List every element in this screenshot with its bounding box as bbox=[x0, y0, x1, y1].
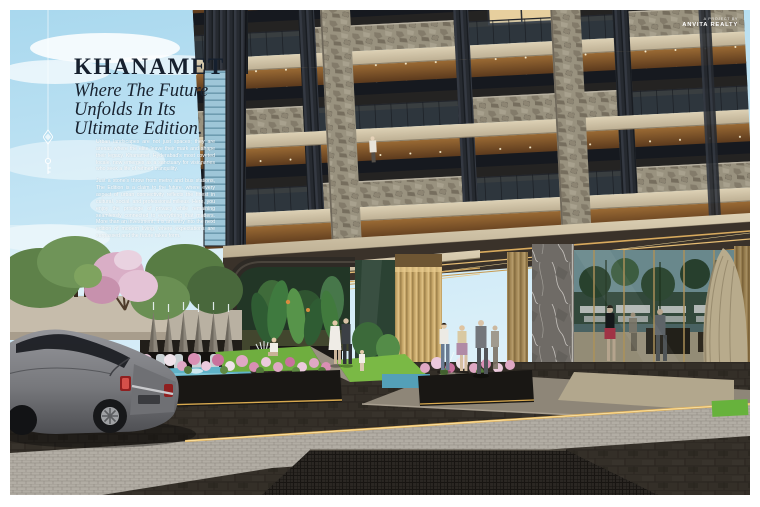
body-copy: Urban landscapes are not just spaces; th… bbox=[96, 139, 215, 245]
building-facade bbox=[191, 10, 750, 251]
key-ornament-icon bbox=[43, 10, 53, 180]
subtitle-line-2: Unfolds In Its bbox=[74, 101, 225, 120]
paragraph-2: Just a stone's throw from metro and bus … bbox=[96, 178, 215, 240]
paragraph-1: Urban landscapes are not just spaces; th… bbox=[96, 139, 215, 173]
developer-logo: A PROJECT BY ANVITA REALTY bbox=[682, 17, 738, 28]
subtitle-line-3: Ultimate Edition. bbox=[74, 120, 225, 139]
subtitle-line-1: Where The Future bbox=[74, 82, 225, 101]
brochure-image: KHANAMET Where The Future Unfolds In Its… bbox=[10, 10, 750, 495]
page-title: KHANAMET bbox=[74, 55, 225, 78]
developer-name: ANVITA REALTY bbox=[682, 22, 738, 28]
developer-pretext: A PROJECT BY bbox=[682, 17, 738, 21]
hero-title-block: KHANAMET Where The Future Unfolds In Its… bbox=[74, 55, 225, 139]
